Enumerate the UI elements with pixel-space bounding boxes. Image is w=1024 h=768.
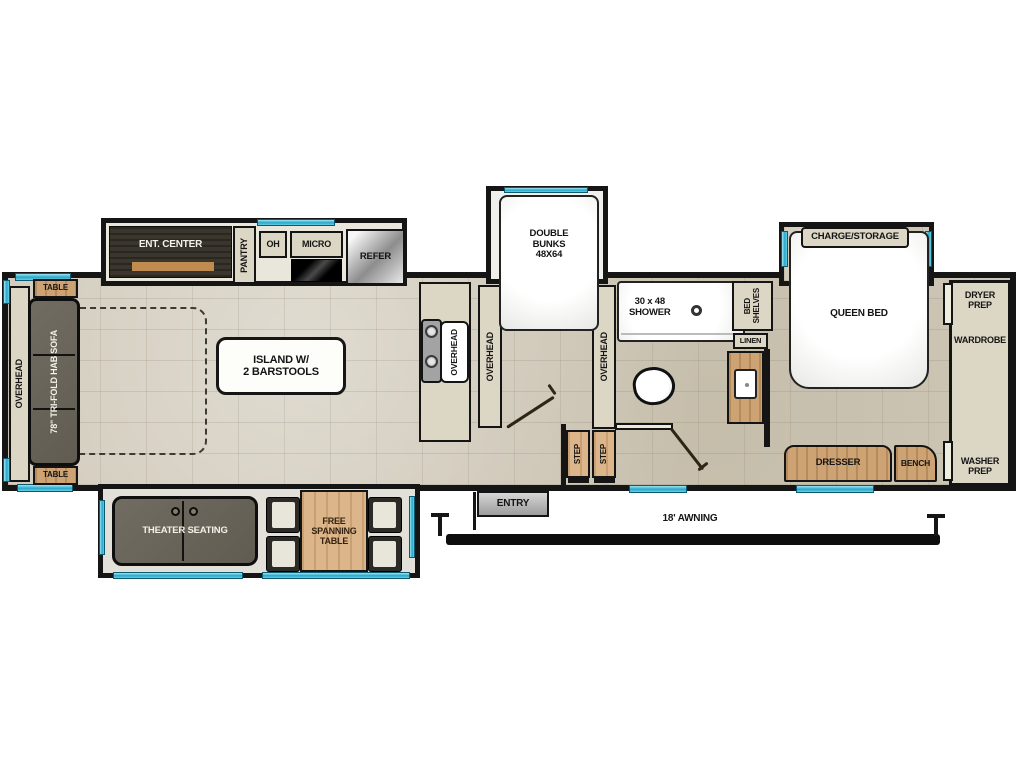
oh-label: OH [266,239,279,249]
queen-bed: QUEEN BED [789,231,929,389]
side-table-top: TABLE [33,279,78,298]
vanity-sink [734,369,757,399]
linen-cabinet: LINEN [733,333,768,349]
micro-label: MICRO [302,239,331,249]
bottom-wall-window-bedroom [796,485,874,493]
chair-cushion [272,541,295,567]
awning-bracket-right-post [934,518,938,536]
free-table-label: FREE SPANNING TABLE [311,516,356,546]
galley-slide: ENT. CENTER PANTRY OH MICRO REFER [101,218,407,286]
front-wall-window-bottom [3,458,10,482]
bed-shelves: BED SHELVES [732,281,773,331]
awning-bar [446,534,940,545]
trifold-sofa: 78" TRI-FOLD HAB SOFA [28,298,80,466]
dresser-label: DRESSER [816,458,861,469]
bunk-window [504,187,588,193]
dresser: DRESSER [784,445,892,482]
vanity-faucet [745,383,749,387]
floorplan-canvas: ENT. CENTER PANTRY OH MICRO REFER DOUBLE… [0,0,1024,768]
double-bunks-label: DOUBLEBUNKS48X64 [501,229,597,261]
rear-closet-door-top [943,283,953,325]
microwave: MICRO [290,231,343,258]
ent-center-label: ENT. CENTER [110,227,231,263]
awning-bracket-right-cap [927,514,945,518]
bottom-slide-window-left [99,500,105,555]
table-bottom-label: TABLE [43,471,68,480]
theater-cupholder-2 [189,507,198,516]
bath-vanity [727,351,764,424]
front-overhead-label: OVERHEAD [14,359,24,408]
sofa-label: 78" TRI-FOLD HAB SOFA [49,330,59,434]
shower-glass-line [621,333,741,335]
chair-cushion [373,502,396,528]
awning-bracket-left-cap [431,513,449,517]
refer-label: REFER [360,252,391,263]
washer-prep-label: WASHER PREP [952,456,1008,476]
chair-cushion [272,502,295,528]
overhead-cabinet-oh: OH [259,231,287,258]
entry-grab-rail [473,492,476,530]
dinette-chair-2 [266,536,300,572]
front-wall-window-top [3,280,10,304]
theater-label: THEATER SEATING [142,526,227,537]
shower-drain [691,305,702,316]
pantry-label: PANTRY [239,238,249,273]
linen-label: LINEN [740,337,762,345]
bottom-slide-window-b2 [262,572,410,579]
awning-bracket-left-post [438,516,442,536]
galley-overhead-left-label: OVERHEAD [485,332,495,381]
theater-seating: THEATER SEATING [112,496,258,566]
queen-window-left [781,231,788,267]
step-2-label: STEP [600,444,609,464]
galley-slide-window [257,219,335,226]
shower: 30 x 48SHOWER [617,281,745,342]
refrigerator: REFER [346,229,405,285]
steps-half-wall [615,423,673,430]
dinette-chair-1 [266,497,300,533]
shower-label: 30 x 48SHOWER [629,297,671,318]
sink-bowl-top [425,325,438,338]
dryer-prep-label: DRYER PREP [952,290,1008,310]
pantry: PANTRY [233,226,256,284]
bottom-wall-window-bath [629,485,687,493]
sink-overhead-label: OVERHEAD [450,329,460,376]
wardrobe-label: WARDROBE [952,335,1008,345]
step-tread-2 [594,476,615,483]
step-tread-1 [568,476,589,483]
step-1-label: STEP [574,444,583,464]
entry-step: ENTRY [477,491,549,517]
queen-bed-label: QUEEN BED [791,295,927,334]
kitchen-sink [421,319,442,383]
bench: BENCH [894,445,937,482]
bottom-slide-window-b1 [113,572,243,579]
galley-overhead-right-label: OVERHEAD [599,332,609,381]
double-bunks: DOUBLEBUNKS48X64 [499,195,599,331]
bottom-wall-window-front [17,484,73,492]
charge-storage: CHARGE/STORAGE [801,227,909,248]
step-2: STEP [592,430,616,478]
rear-closet: DRYER PREP WARDROBE WASHER PREP [949,280,1011,486]
entertainment-center: ENT. CENTER [109,226,232,278]
charge-storage-label: CHARGE/STORAGE [811,232,899,243]
free-spanning-table: FREE SPANNING TABLE [300,490,368,572]
entry-label: ENTRY [497,498,530,509]
side-table-bottom: TABLE [33,466,78,485]
chair-cushion [373,541,396,567]
rear-closet-door-bottom [943,441,953,481]
dinette-chair-4 [368,536,402,572]
bath-bedroom-wall [764,349,770,447]
bottom-slide-window-right [409,496,415,558]
step-1: STEP [566,430,590,478]
kitchen-island: ISLAND W/2 BARSTOOLS [216,337,346,395]
ent-center-shelf [132,262,214,271]
table-top-label: TABLE [43,284,68,293]
sink-overhead-cabinet: OVERHEAD [440,321,469,383]
range-stove [291,259,342,282]
theater-cupholder-1 [171,507,180,516]
bench-label: BENCH [901,459,930,469]
island-label: ISLAND W/2 BARSTOOLS [219,340,343,392]
dinette-chair-3 [368,497,402,533]
awning-label: 18' AWNING [640,513,740,524]
sink-bowl-bottom [425,355,438,368]
slide-travel-outline [80,307,207,455]
bed-shelves-label-2: SHELVES [753,288,762,323]
front-overhead-cabinet: OVERHEAD [9,286,30,482]
